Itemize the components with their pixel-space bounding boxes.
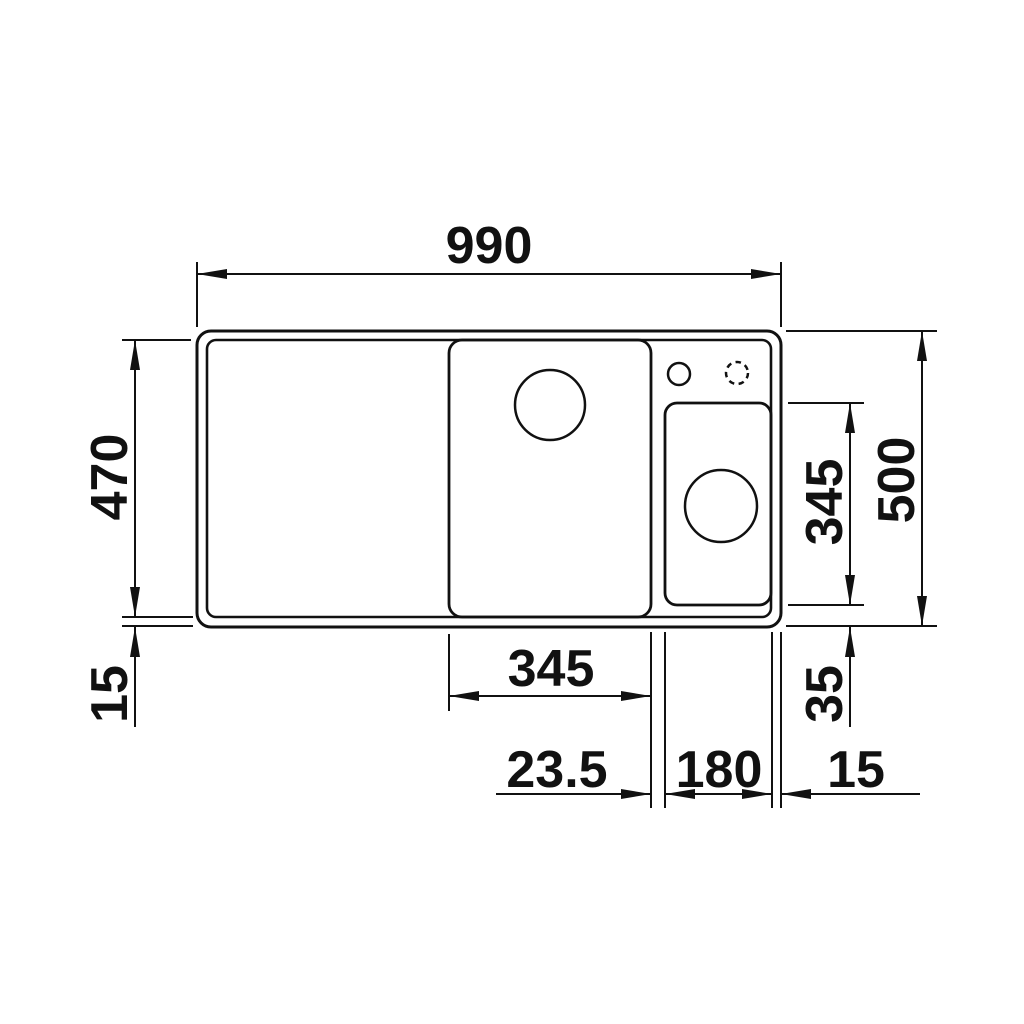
arrowhead-down: [130, 587, 140, 617]
dim-bowl-gap-label: 23.5: [506, 741, 607, 799]
arrowhead-up: [917, 331, 927, 361]
arrowhead-left: [449, 691, 479, 701]
dim-inner-depth-label: 470: [81, 434, 139, 521]
arrowhead-down: [917, 596, 927, 626]
half-bowl: [665, 403, 771, 605]
dim-overall-width: 990: [197, 217, 781, 327]
dim-overall-depth-label: 500: [868, 437, 926, 524]
tap-hole: [668, 363, 690, 385]
dim-rim-bottom-left-label: 15: [81, 665, 139, 723]
dim-half-bowl-width-label: 180: [676, 741, 763, 799]
arrowhead-left: [197, 269, 227, 279]
half-bowl-group: [665, 403, 771, 605]
arrowhead-left: [781, 789, 811, 799]
dim-half-bowl-bottom-offset: 35: [796, 627, 855, 727]
arrowhead-up: [845, 403, 855, 433]
sink-technical-drawing: 990 470 15 500: [0, 0, 1024, 1024]
arrowhead-up: [130, 340, 140, 370]
main-bowl: [449, 340, 651, 617]
arrowhead-right: [621, 691, 651, 701]
dim-bowl-gap: 23.5: [496, 741, 651, 799]
sink-outline-group: [197, 331, 781, 627]
dim-overall-width-label: 990: [446, 217, 533, 275]
dim-inner-depth: 470: [81, 340, 193, 617]
dim-rim-right-label: 15: [827, 741, 885, 799]
half-bowl-drain-hole: [685, 470, 757, 542]
tap-holes-group: [668, 362, 748, 385]
arrowhead-up: [845, 627, 855, 657]
arrowhead-down: [845, 575, 855, 605]
tap-hole-optional-dashed: [726, 362, 748, 384]
dim-half-bowl-width: 180: [665, 632, 772, 808]
arrowhead-up: [130, 627, 140, 657]
arrowhead-right: [751, 269, 781, 279]
main-bowl-group: [449, 340, 651, 617]
main-bowl-drain-hole: [515, 370, 585, 440]
dim-rim-bottom-left: 15: [81, 626, 193, 727]
arrowhead-right: [621, 789, 651, 799]
dim-half-bowl-length: 345: [788, 403, 864, 605]
sink-technical-drawing-canvas: 990 470 15 500: [0, 0, 1024, 1024]
dim-main-bowl-width-label: 345: [508, 640, 595, 698]
sink-outer-rim: [197, 331, 781, 627]
dim-half-bowl-length-label: 345: [796, 459, 854, 546]
dim-half-bowl-bottom-offset-label: 35: [796, 665, 854, 723]
